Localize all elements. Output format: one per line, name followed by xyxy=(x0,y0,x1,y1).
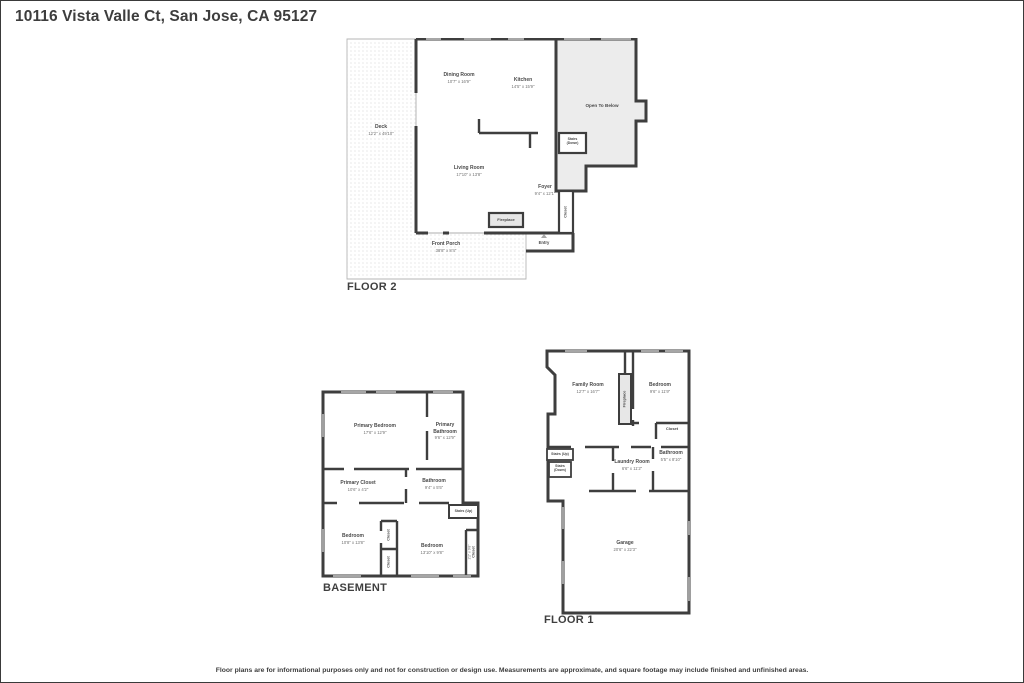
floor2-stairs-label: Stairs(Down) xyxy=(559,137,586,146)
deck-label: Deck12'2" x 49'10" xyxy=(368,124,393,136)
entry-label: Entry xyxy=(539,240,550,245)
foyer-label: Foyer9'4" x 12'1" xyxy=(535,184,556,196)
front-porch-label: Front Porch38'8" x 8'4" xyxy=(432,241,460,253)
address-title: 10116 Vista Valle Ct, San Jose, CA 95127 xyxy=(15,8,317,26)
basement-stairs-label: Stairs (Up) xyxy=(449,509,478,513)
open-to-below-area xyxy=(556,39,646,191)
basement-closet-a-label: Closet xyxy=(387,529,392,541)
floor1-stairs-up-label: Stairs (Up) xyxy=(547,452,573,456)
basement-bedroom-left-label: Bedroom10'8" x 13'8" xyxy=(342,533,365,545)
floor2-caption: FLOOR 2 xyxy=(347,281,397,293)
floor2-closet-label: Closet xyxy=(564,206,569,218)
disclaimer-text: Floor plans are for informational purpos… xyxy=(1,667,1023,674)
floor1-stairs-down-label: Stairs(Down) xyxy=(549,464,571,473)
floor1-fireplace-label: Fireplace xyxy=(623,391,628,408)
laundry-room-label: Laundry Room6'6" x 11'2" xyxy=(614,459,649,471)
basement-plan: Primary Bedroom17'6" x 12'9" Primary Bat… xyxy=(321,389,483,585)
living-room-label: Living Room17'10" x 13'8" xyxy=(454,165,484,177)
basement-caption: BASEMENT xyxy=(323,582,387,594)
floor1-caption: FLOOR 1 xyxy=(544,614,594,626)
garage-label: Garage20'6" x 22'3" xyxy=(614,540,637,552)
floor2-walls xyxy=(346,38,648,282)
primary-bedroom-label: Primary Bedroom17'6" x 12'9" xyxy=(354,423,396,435)
fireplace-label: Fireplace xyxy=(497,217,515,222)
floorplan-sheet: 10116 Vista Valle Ct, San Jose, CA 95127 xyxy=(0,0,1024,683)
primary-bathroom-label: Primary Bathroom9'6" x 12'9" xyxy=(428,422,462,440)
open-to-below-label: Open To Below xyxy=(585,103,618,108)
entry-marker-icon xyxy=(541,234,547,238)
floor1-closet-label: Closet xyxy=(666,426,678,431)
primary-closet-label: Primary Closet10'6" x 4'2" xyxy=(340,480,375,492)
floor1-plan: Family Room12'7" x 16'7" Fireplace Bedro… xyxy=(541,349,693,619)
family-room-label: Family Room12'7" x 16'7" xyxy=(572,382,603,394)
floor1-bedroom-label: Bedroom9'6" x 11'9" xyxy=(649,382,671,394)
kitchen-label: Kitchen14'5" x 15'9" xyxy=(512,77,535,89)
basement-bathroom-label: Bathroom9'4" x 5'5" xyxy=(422,478,446,490)
basement-closet-right-label: 2'2" x 9'8"Closet xyxy=(468,545,477,560)
floor2-plan: Deck12'2" x 49'10" Dining Room10'7" x 16… xyxy=(346,38,648,282)
dining-room-label: Dining Room10'7" x 16'9" xyxy=(443,72,474,84)
basement-closet-b-label: Closet xyxy=(387,556,392,568)
floor1-bathroom-label: Bathroom5'5" x 8'10" xyxy=(659,450,683,462)
basement-bedroom-right-label: Bedroom13'10" x 9'8" xyxy=(421,543,444,555)
